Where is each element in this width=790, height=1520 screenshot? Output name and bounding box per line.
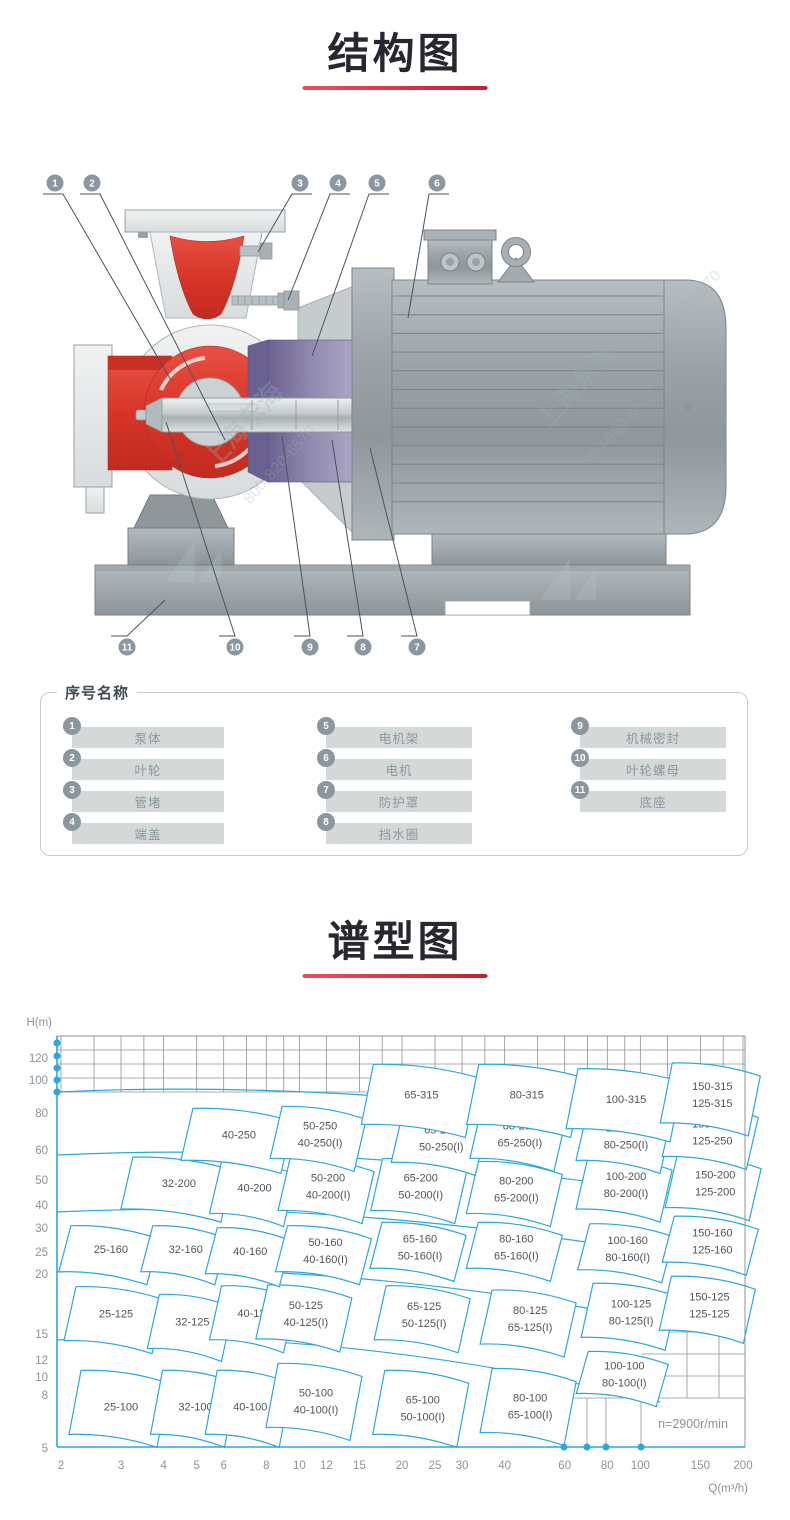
suction-flange [74,345,112,487]
svg-text:60: 60 [35,1145,48,1157]
svg-text:65-100(I): 65-100(I) [508,1410,553,1422]
svg-text:100-125: 100-125 [611,1298,651,1310]
svg-text:150-125: 150-125 [689,1291,729,1303]
svg-text:9: 9 [307,643,313,654]
svg-text:100-160: 100-160 [608,1235,648,1247]
parts-legend-panel: 序号名称 1泵体2叶轮3管堵4端盖5电机架6电机7防护罩8挡水圈9机械密封10叶… [40,692,748,856]
svg-text:5: 5 [42,1443,48,1455]
legend-number-badge: 6 [317,749,335,767]
svg-text:2: 2 [89,179,95,190]
pump-model-tile-80-160: 80-16065-160(I) [466,1222,562,1281]
svg-text:80-160: 80-160 [499,1233,533,1245]
svg-text:100-315: 100-315 [606,1094,646,1106]
svg-text:32-160: 32-160 [169,1244,203,1256]
pump-model-tile-50-200: 50-20040-200(I) [278,1158,374,1223]
svg-text:80: 80 [601,1460,614,1472]
spectrum-section-title: 谱型图 [0,908,790,969]
svg-text:32-200: 32-200 [162,1178,196,1190]
legend-part-name: 底座 [580,791,726,812]
title-underline [303,86,488,90]
pump-structure-diagram: 上海东海800-820-6570上海东海800-820-6570800-820-… [0,150,790,690]
pump-model-tile-80-100: 80-10065-100(I) [480,1368,576,1445]
svg-text:40: 40 [498,1460,511,1472]
svg-text:10: 10 [35,1372,48,1384]
svg-text:125-315: 125-315 [692,1098,732,1110]
svg-text:50-125(I): 50-125(I) [402,1318,447,1330]
legend-number-badge: 4 [63,813,81,831]
svg-text:1: 1 [52,179,58,190]
svg-text:12: 12 [320,1460,333,1472]
svg-text:8: 8 [360,643,366,654]
svg-text:11: 11 [122,643,133,654]
svg-text:65-200: 65-200 [404,1173,438,1185]
svg-text:5: 5 [193,1460,199,1472]
legend-part-name: 挡水圈 [326,823,472,844]
pump-model-tile-25-160: 25-160 [59,1226,159,1285]
svg-text:65-125(I): 65-125(I) [508,1322,553,1334]
svg-text:12: 12 [35,1355,48,1367]
svg-text:30: 30 [456,1460,469,1472]
legend-part-name: 管堵 [72,791,224,812]
svg-text:50-200(I): 50-200(I) [398,1190,443,1202]
legend-part-name: 叶轮螺母 [580,759,726,780]
svg-text:50-160(I): 50-160(I) [398,1250,443,1262]
svg-text:40-200(I): 40-200(I) [306,1190,351,1202]
svg-text:100: 100 [631,1460,650,1472]
svg-text:25-100: 25-100 [104,1401,138,1413]
svg-text:150-160: 150-160 [692,1227,732,1239]
svg-text:125-200: 125-200 [695,1187,735,1199]
motor-end-shield [352,268,394,540]
legend-header: 序号名称 [57,682,137,703]
pump-model-tile-65-125: 65-12550-125(I) [374,1286,470,1353]
svg-text:50-250: 50-250 [303,1120,337,1132]
legend-number-badge: 9 [571,717,589,735]
svg-text:80: 80 [35,1108,48,1120]
legend-number-badge: 3 [63,781,81,799]
discharge-flange [125,210,285,232]
pump-model-tile-50-250: 50-25040-250(I) [270,1106,366,1171]
pump-model-tile-150-160: 150-160125-160 [662,1216,758,1275]
svg-text:80-125: 80-125 [513,1305,547,1317]
svg-text:50-160: 50-160 [308,1237,342,1249]
svg-text:65-100: 65-100 [406,1394,440,1406]
svg-text:40-160: 40-160 [233,1246,267,1258]
svg-text:150-315: 150-315 [692,1081,732,1093]
svg-text:6: 6 [220,1460,226,1472]
svg-text:50-200: 50-200 [311,1173,345,1185]
svg-text:25: 25 [35,1247,48,1259]
svg-text:10: 10 [293,1460,306,1472]
svg-text:3: 3 [118,1460,124,1472]
svg-text:32-125: 32-125 [175,1316,209,1328]
svg-text:80-160(I): 80-160(I) [605,1252,650,1264]
svg-text:32-100: 32-100 [178,1401,212,1413]
svg-text:7: 7 [414,643,420,654]
legend-number-badge: 7 [317,781,335,799]
svg-text:5: 5 [374,179,380,190]
motor-body [392,280,664,534]
legend-part-name: 叶轮 [72,759,224,780]
svg-text:2: 2 [58,1460,64,1472]
svg-text:80-100: 80-100 [513,1393,547,1405]
svg-text:30: 30 [35,1223,48,1235]
svg-text:125-250: 125-250 [692,1136,732,1148]
svg-text:20: 20 [396,1460,409,1472]
pump-model-tile-100-160: 100-16080-160(I) [578,1224,674,1283]
svg-text:65-160: 65-160 [403,1233,437,1245]
svg-text:15: 15 [353,1460,366,1472]
svg-text:60: 60 [558,1460,571,1472]
pump-model-tile-25-100: 25-100 [69,1370,169,1447]
svg-text:100-200: 100-200 [606,1171,646,1183]
legend-number-badge: 11 [571,781,589,799]
callout-10: 10 [227,639,244,656]
structure-section-title: 结构图 [0,20,790,81]
legend-part-name: 泵体 [72,727,224,748]
svg-text:65-125: 65-125 [407,1301,441,1313]
svg-text:120: 120 [29,1053,48,1065]
pump-model-tile-65-100: 65-10050-100(I) [373,1370,469,1447]
callout-4: 4 [330,175,347,192]
svg-text:40-160(I): 40-160(I) [303,1254,348,1266]
svg-text:65-315: 65-315 [404,1089,438,1101]
svg-text:100: 100 [29,1075,48,1087]
svg-text:4: 4 [335,179,341,190]
callout-8: 8 [355,639,372,656]
svg-text:15: 15 [35,1329,48,1341]
legend-part-name: 防护罩 [326,791,472,812]
svg-text:25-160: 25-160 [94,1244,128,1256]
callout-6: 6 [429,175,446,192]
pump-model-tile-65-160: 65-16050-160(I) [370,1222,466,1281]
speed-label: n=2900r/min [658,1417,728,1431]
svg-text:10: 10 [229,643,241,654]
svg-text:8: 8 [263,1460,269,1472]
svg-text:6: 6 [434,179,440,190]
legend-part-name: 电机架 [326,727,472,748]
svg-text:200: 200 [733,1460,752,1472]
svg-text:4: 4 [160,1460,167,1472]
svg-text:40-200: 40-200 [237,1183,271,1195]
svg-text:50-100(I): 50-100(I) [400,1411,445,1423]
svg-text:50: 50 [35,1175,48,1187]
svg-text:125-160: 125-160 [692,1244,732,1256]
pump-model-tile-150-125: 150-125125-125 [659,1276,755,1343]
svg-text:25: 25 [429,1460,442,1472]
svg-text:80-250(I): 80-250(I) [604,1139,649,1151]
pump-model-tile-65-315: 65-315 [361,1064,477,1137]
svg-text:3: 3 [297,179,303,190]
svg-text:50-125: 50-125 [289,1300,323,1312]
pump-model-tile-40-160: 40-160 [205,1228,291,1287]
callout-2: 2 [84,175,101,192]
svg-text:80-125(I): 80-125(I) [609,1315,654,1327]
svg-text:80-200: 80-200 [499,1176,533,1188]
legend-part-name: 电机 [326,759,472,780]
svg-text:65-250(I): 65-250(I) [498,1137,543,1149]
svg-text:40-250: 40-250 [222,1129,256,1141]
svg-text:8: 8 [42,1390,48,1402]
svg-text:150-200: 150-200 [695,1170,735,1182]
callout-5: 5 [369,175,386,192]
pump-model-tile-80-125: 80-12565-125(I) [480,1290,576,1357]
legend-number-badge: 8 [317,813,335,831]
model-tiles: 25-10032-10040-10050-10040-100(I)65-1005… [59,1063,761,1447]
svg-text:80-315: 80-315 [510,1089,544,1101]
x-axis-label: Q(m³/h) [708,1483,748,1495]
svg-text:40-250(I): 40-250(I) [298,1137,343,1149]
legend-number-badge: 5 [317,717,335,735]
callout-1: 1 [47,175,64,192]
callout-3: 3 [292,175,309,192]
svg-text:20: 20 [35,1269,48,1281]
svg-text:40-100: 40-100 [233,1401,267,1413]
svg-text:65-160(I): 65-160(I) [494,1250,539,1262]
svg-text:80-100(I): 80-100(I) [602,1378,647,1390]
title-underline [303,974,488,978]
svg-text:40-125(I): 40-125(I) [284,1317,329,1329]
svg-text:125-125: 125-125 [689,1308,729,1320]
svg-text:40: 40 [35,1200,48,1212]
callout-7: 7 [409,639,426,656]
svg-text:25-125: 25-125 [99,1309,133,1321]
svg-text:80-200(I): 80-200(I) [604,1188,649,1200]
svg-text:50-100: 50-100 [299,1387,333,1399]
legend-number-badge: 2 [63,749,81,767]
terminal-box [424,230,496,240]
svg-text:150: 150 [691,1460,710,1472]
callout-11: 11 [119,639,136,656]
callout-9: 9 [302,639,319,656]
pump-selection-chart: 25-10032-10040-10050-10040-100(I)65-1005… [0,1000,790,1520]
svg-text:100-100: 100-100 [604,1361,644,1373]
legend-number-badge: 1 [63,717,81,735]
svg-text:65-200(I): 65-200(I) [494,1193,539,1205]
y-axis-label: H(m) [26,1017,52,1029]
svg-text:50-250(I): 50-250(I) [419,1141,464,1153]
legend-part-name: 机械密封 [580,727,726,748]
legend-part-name: 端盖 [72,823,224,844]
svg-text:40-100(I): 40-100(I) [294,1404,339,1416]
pump-model-tile-80-200: 80-20065-200(I) [466,1161,562,1226]
legend-number-badge: 10 [571,749,589,767]
